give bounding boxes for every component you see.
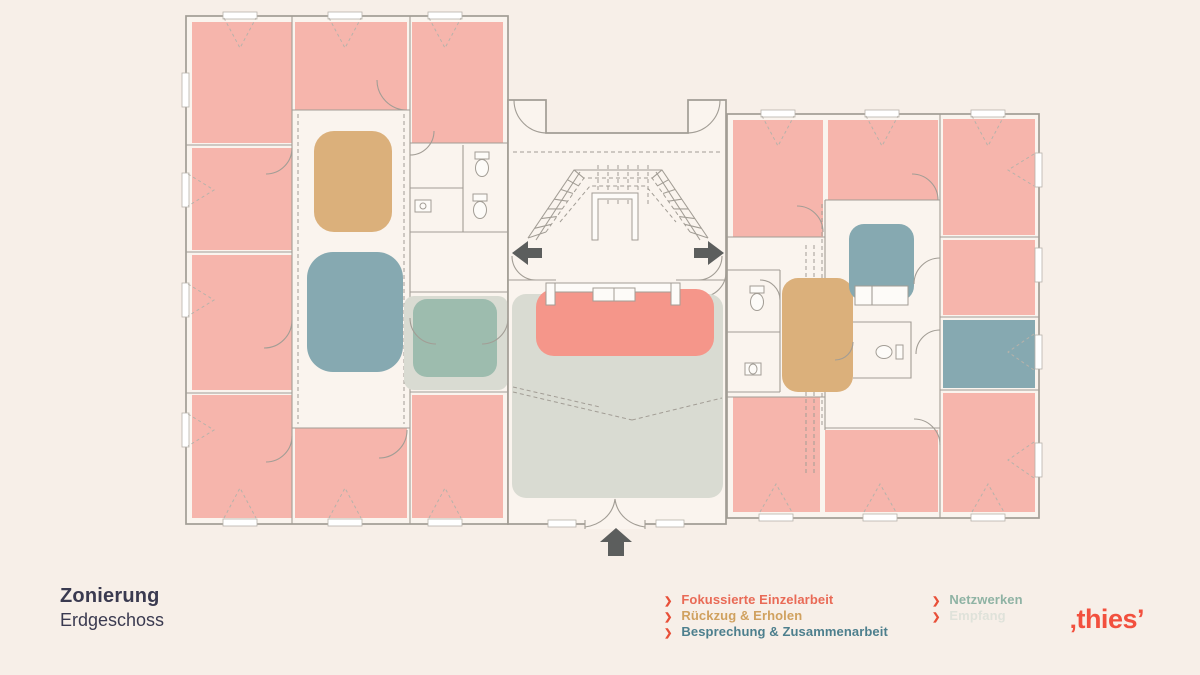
legend-label-retreat: Rückzug & Erholen: [681, 608, 802, 623]
right-wing: [727, 110, 1042, 521]
title-block: Zonierung Erdgeschoss: [60, 585, 164, 631]
zone-meeting-left: [307, 252, 403, 372]
logo-text: thies: [1076, 604, 1137, 634]
legend-item-focused-work: ❯ Fokussierte Einzelarbeit: [664, 592, 888, 608]
zone-network: [413, 299, 497, 377]
legend-label-networking: Netzwerken: [949, 592, 1022, 607]
left-wing: [182, 12, 508, 526]
slide: Zonierung Erdgeschoss ❯ Fokussierte Einz…: [0, 0, 1200, 675]
legend-item-reception: ❯ Empfang: [932, 608, 1023, 624]
legend-bullet-icon: ❯: [664, 626, 672, 641]
legend-label-focused-work: Fokussierte Einzelarbeit: [681, 592, 833, 607]
floor-plan: [0, 0, 1200, 675]
thies-logo: ‚thies’: [1069, 604, 1144, 635]
legend-label-meeting: Besprechung & Zusammenarbeit: [681, 624, 888, 639]
legend-bullet-icon: ❯: [932, 594, 940, 609]
legend-bullet-icon: ❯: [664, 610, 672, 625]
zone-meeting-room-right: [943, 320, 1035, 388]
central-hall: [508, 100, 726, 556]
legend-bullet-icon: ❯: [932, 610, 940, 625]
legend-column-left: ❯ Fokussierte Einzelarbeit ❯ Rückzug & E…: [664, 592, 888, 640]
zone-retreat-left: [314, 131, 392, 232]
legend-label-reception: Empfang: [949, 608, 1005, 623]
legend-item-networking: ❯ Netzwerken: [932, 592, 1023, 608]
page-title: Zonierung: [60, 585, 164, 608]
legend-item-meeting: ❯ Besprechung & Zusammenarbeit: [664, 624, 888, 640]
legend-column-right: ❯ Netzwerken ❯ Empfang: [932, 592, 1023, 624]
page-subtitle: Erdgeschoss: [60, 610, 164, 631]
zone-retreat-right: [782, 278, 853, 392]
legend-item-retreat: ❯ Rückzug & Erholen: [664, 608, 888, 624]
legend-bullet-icon: ❯: [664, 594, 672, 609]
logo-mark-right: ’: [1137, 604, 1144, 634]
entrance-arrow-icon: [600, 528, 632, 556]
